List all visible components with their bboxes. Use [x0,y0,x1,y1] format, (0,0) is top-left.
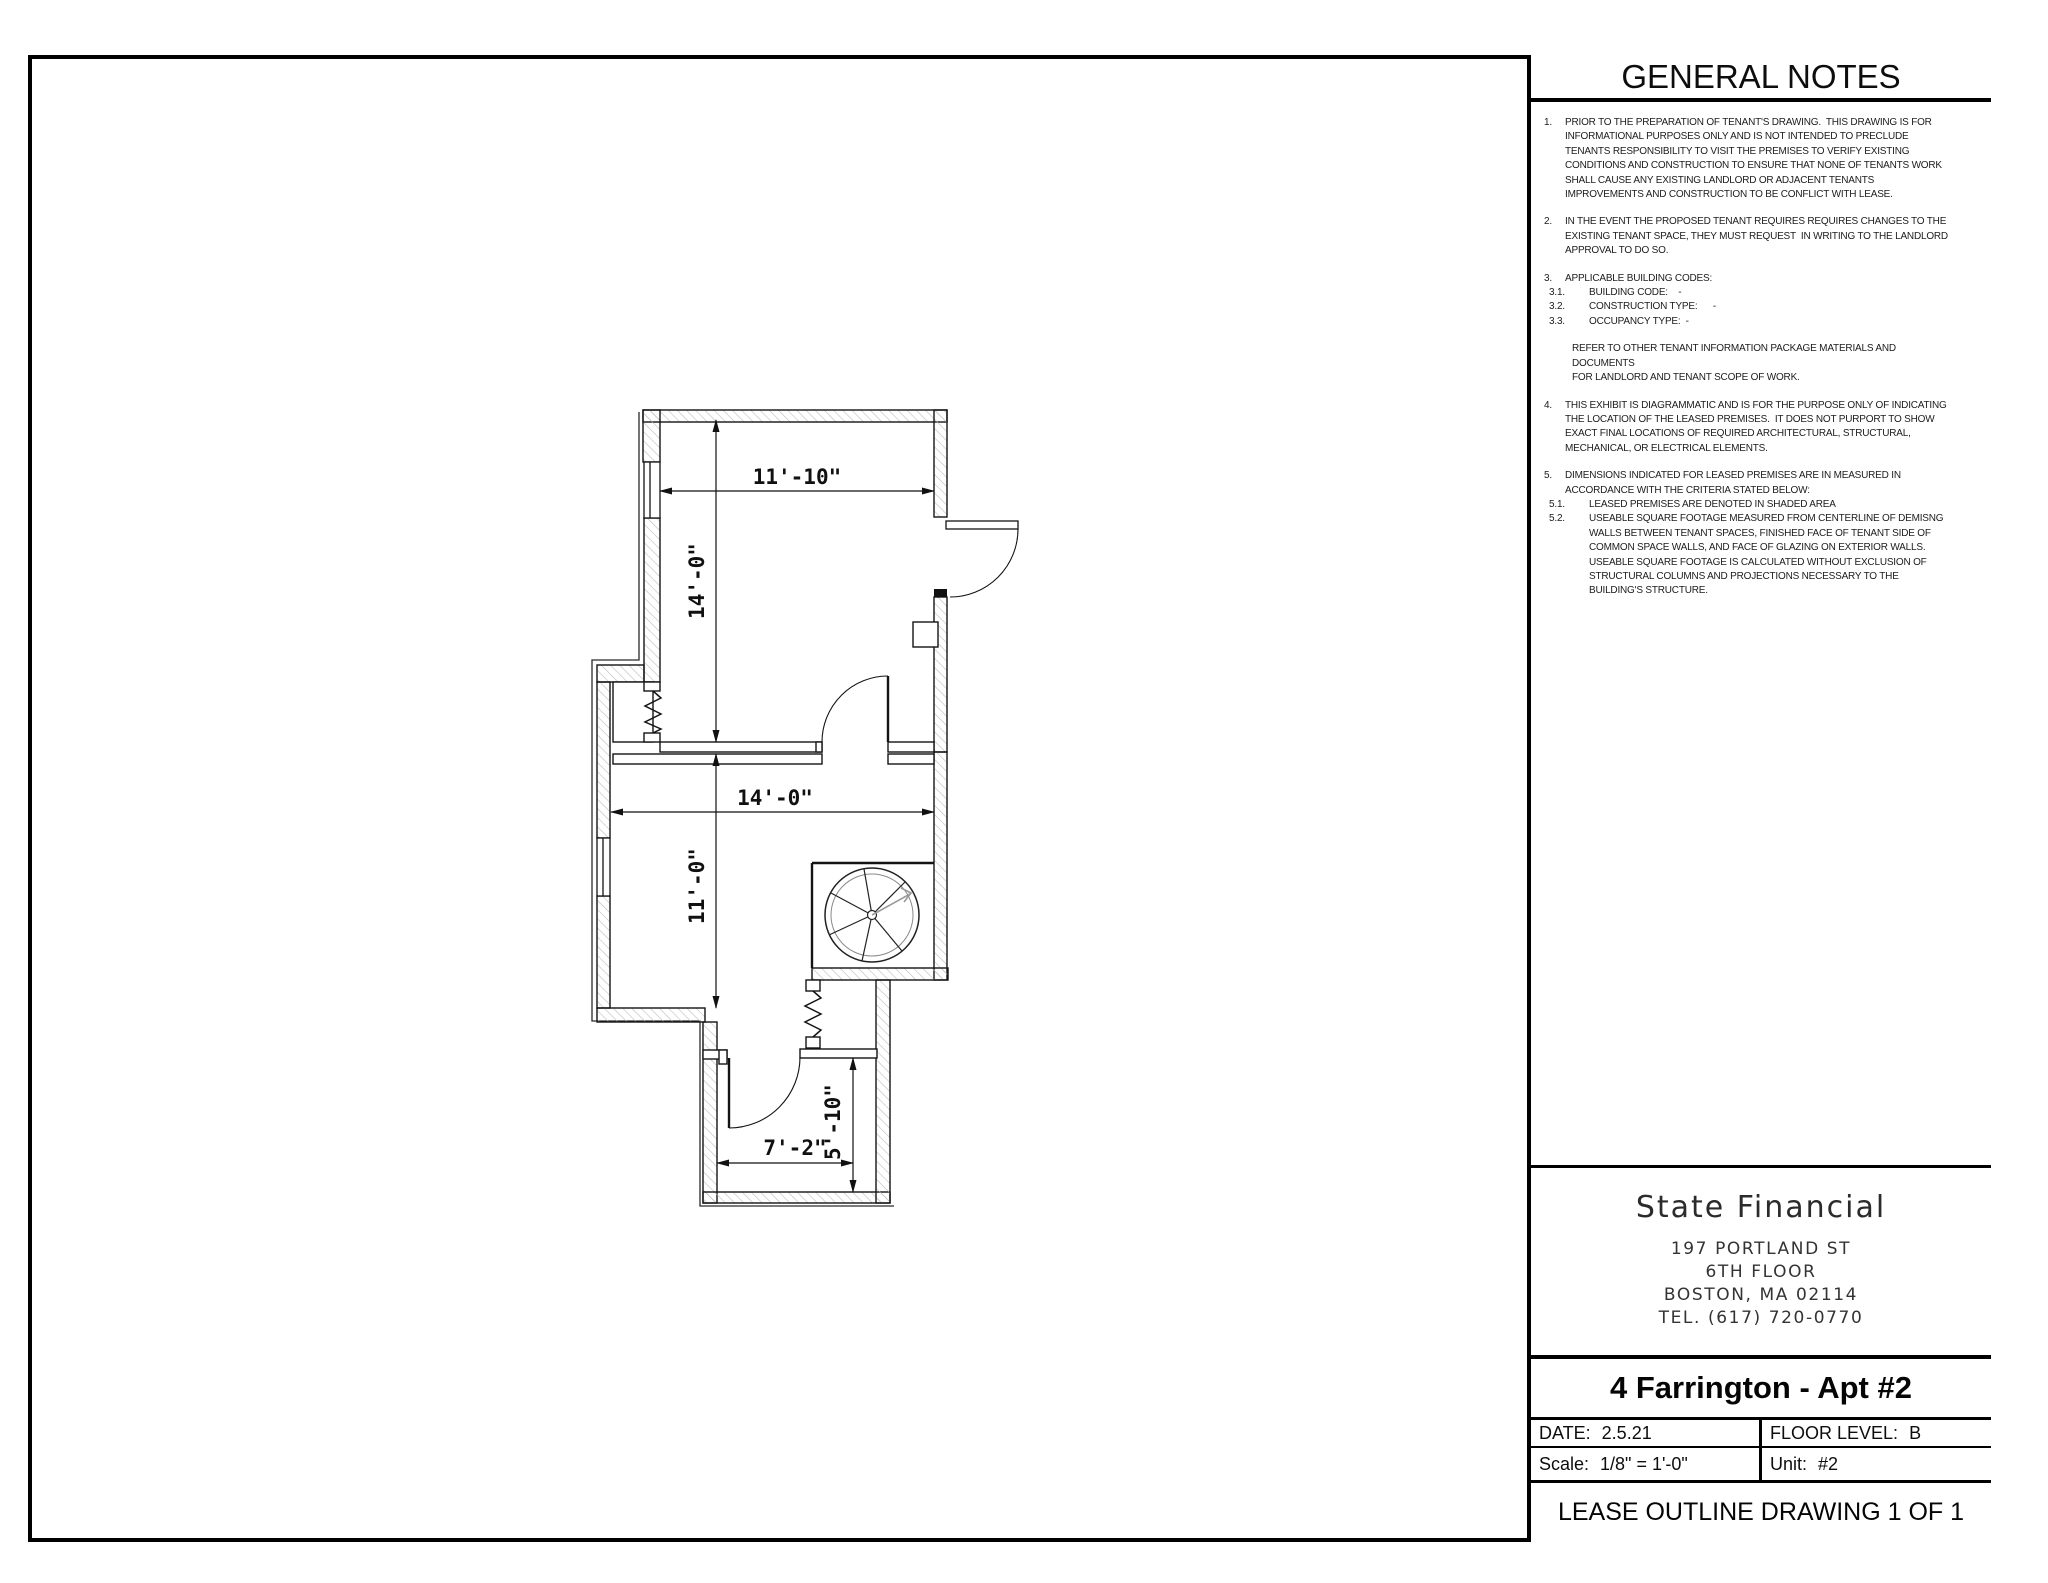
note-text: THIS EXHIBIT IS DIAGRAMMATIC AND IS FOR … [1565,399,1955,457]
door-jamb [644,733,660,742]
scale-cell: Scale: 1/8" = 1'-0" [1531,1448,1762,1480]
wall-segment [597,665,644,682]
door-jamb [719,1050,727,1064]
spiral-staircase [825,868,919,962]
date-cell: DATE: 2.5.21 [1531,1420,1762,1446]
date-label: DATE: [1539,1423,1591,1444]
note-text: PRIOR TO THE PREPARATION OF TENANT'S DRA… [1565,116,1955,202]
pilaster [913,622,938,647]
note-sub-text: USEABLE SQUARE FOOTAGE MEASURED FROM CEN… [1589,512,1955,598]
wall-segment [934,410,947,517]
scale-label: Scale: [1539,1454,1589,1475]
door-jamb [934,589,947,597]
note-sub-text: OCCUPANCY TYPE: - [1589,315,1955,329]
note-item: 4. THIS EXHIBIT IS DIAGRAMMATIC AND IS F… [1544,399,1955,457]
door-jamb [816,742,822,752]
company-address: 197 PORTLAND ST 6TH FLOOR BOSTON, MA 021… [1531,1238,1991,1330]
note-subitem: 3.3. OCCUPANCY TYPE: - [1544,315,1955,329]
note-subitem: 3.1. BUILDING CODE: - [1544,286,1955,300]
wall-segment [934,752,947,980]
note-number: 2. [1544,215,1565,258]
wall-segment [643,410,660,462]
general-notes-header: GENERAL NOTES [1531,55,1991,102]
wall-segment [613,754,822,764]
wall-segment [644,518,660,682]
dim-mid-height: 11'-0" [685,848,709,924]
wall-segment [597,896,610,1008]
unit-label: Unit: [1770,1454,1807,1475]
note-sub-text: CONSTRUCTION TYPE: - [1589,300,1955,314]
company-address-line3: BOSTON, MA 02114 [1531,1284,1991,1307]
dim-lower-width: 7'-2" [763,1136,826,1160]
company-phone: TEL. (617) 720-0770 [1531,1307,1991,1330]
wall-segment [888,754,934,764]
company-name: State Financial [1531,1190,1991,1225]
title-block-row-1: DATE: 2.5.21 FLOOR LEVEL: B [1531,1417,1991,1446]
wall-segment [800,1049,877,1058]
note-sub-number: 3.3. [1549,315,1589,329]
scale-value: 1/8" = 1'-0" [1600,1454,1688,1475]
note-text: APPLICABLE BUILDING CODES: [1565,272,1955,286]
door-jamb [644,682,660,691]
wall-segment [703,1022,717,1203]
floor-level-value: B [1909,1423,1921,1444]
wall-segment [703,1192,890,1203]
wall-segment [876,980,890,1203]
floor-level-label: FLOOR LEVEL: [1770,1423,1898,1444]
project-title: 4 Farrington - Apt #2 [1531,1355,1991,1417]
note-sub-text: LEASED PREMISES ARE DENOTED IN SHADED AR… [1589,498,1955,512]
company-block: State Financial 197 PORTLAND ST 6TH FLOO… [1531,1165,1991,1355]
note-number: 5. [1544,469,1565,498]
entry-door-leaf [946,521,1018,529]
wall-segment [812,968,948,980]
note-sub-number: 3.2. [1549,300,1589,314]
door-jamb [806,1037,820,1048]
lower-door-swing [729,1057,800,1128]
note-item: 1. PRIOR TO THE PREPARATION OF TENANT'S … [1544,116,1955,202]
note-number: 4. [1544,399,1565,457]
door-jamb [806,980,820,991]
wall-segment [934,597,947,752]
wall-segment [888,742,934,752]
dim-mid-width: 14'-0" [737,786,813,810]
note-number: 3. [1544,272,1565,286]
floor-level-cell: FLOOR LEVEL: B [1762,1420,1991,1446]
note-number: 1. [1544,116,1565,202]
note-item: 5. DIMENSIONS INDICATED FOR LEASED PREMI… [1544,469,1955,599]
sheet-title: LEASE OUTLINE DRAWING 1 OF 1 [1531,1480,1991,1542]
wall-segment [643,410,947,422]
break-line [805,991,821,1037]
wall-segment [597,1008,705,1022]
note-sub-number: 5.2. [1549,512,1589,598]
note-reference-text: REFER TO OTHER TENANT INFORMATION PACKAG… [1544,342,1955,385]
note-sub-text: BUILDING CODE: - [1589,286,1955,300]
doors [729,521,1018,1128]
dim-lower-height: 5'-10" [821,1084,845,1160]
dim-upper-width: 11'-10" [753,465,842,489]
company-address-line2: 6TH FLOOR [1531,1261,1991,1284]
title-block-row-2: Scale: 1/8" = 1'-0" Unit: #2 [1531,1446,1991,1480]
general-notes-title: GENERAL NOTES [1621,58,1900,96]
interior-door-swing [822,676,888,742]
note-item: 2. IN THE EVENT THE PROPOSED TENANT REQU… [1544,215,1955,258]
unit-value: #2 [1818,1454,1838,1475]
title-block-panel: GENERAL NOTES 1. PRIOR TO THE PREPARATIO… [1527,55,1991,1542]
company-address-line1: 197 PORTLAND ST [1531,1238,1991,1261]
note-text: DIMENSIONS INDICATED FOR LEASED PREMISES… [1565,469,1955,498]
note-sub-number: 3.1. [1549,286,1589,300]
wall-segment [597,682,610,838]
entry-door-swing [950,529,1018,597]
note-text: IN THE EVENT THE PROPOSED TENANT REQUIRE… [1565,215,1955,258]
note-subitem: 3.2. CONSTRUCTION TYPE: - [1544,300,1955,314]
unit-cell: Unit: #2 [1762,1448,1991,1480]
wall-segment [660,742,822,752]
window [644,462,660,518]
note-sub-number: 5.1. [1549,498,1589,512]
dim-upper-height: 14'-0" [685,543,709,619]
note-subitem: 5.1. LEASED PREMISES ARE DENOTED IN SHAD… [1544,498,1955,512]
date-value: 2.5.21 [1602,1423,1652,1444]
general-notes-list: 1. PRIOR TO THE PREPARATION OF TENANT'S … [1531,102,1991,599]
note-subitem: 5.2. USEABLE SQUARE FOOTAGE MEASURED FRO… [1544,512,1955,598]
note-item: 3. APPLICABLE BUILDING CODES: 3.1. BUILD… [1544,272,1955,386]
